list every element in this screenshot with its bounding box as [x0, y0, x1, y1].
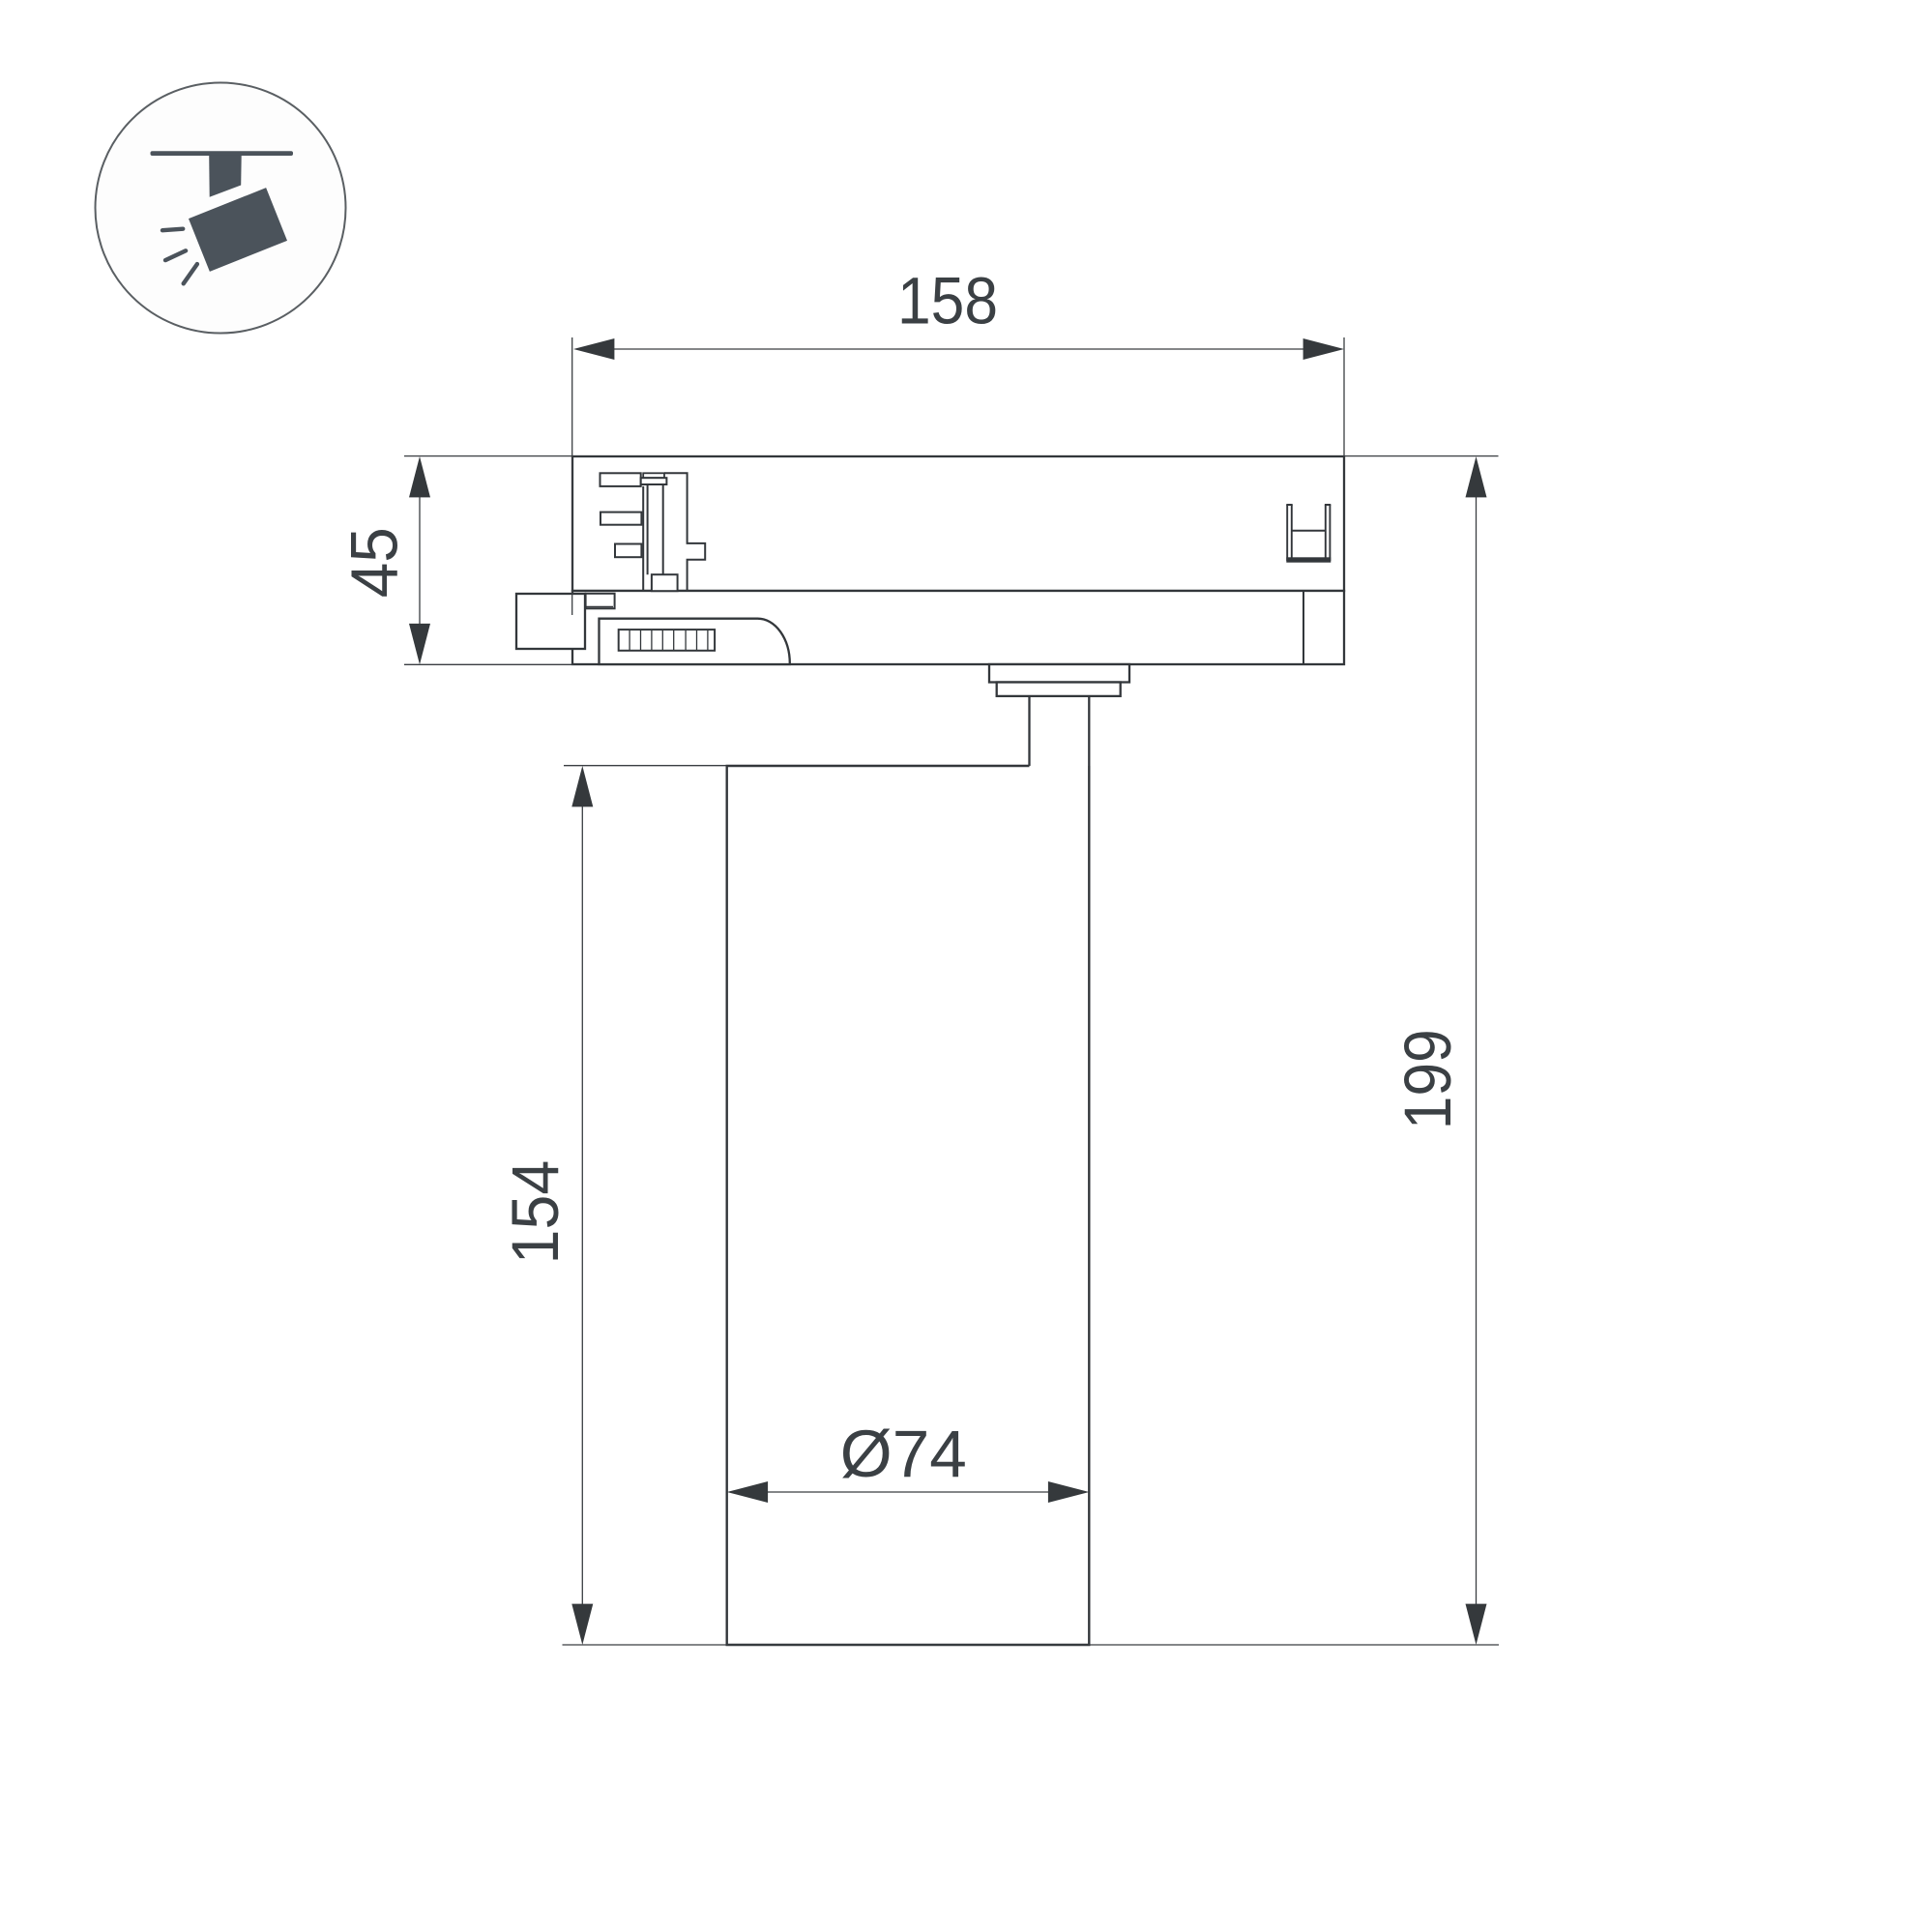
- svg-text:Ø74: Ø74: [840, 1417, 967, 1491]
- svg-text:199: 199: [1390, 1029, 1465, 1129]
- svg-text:158: 158: [897, 264, 998, 338]
- svg-text:154: 154: [498, 1160, 572, 1265]
- svg-text:45: 45: [337, 527, 412, 598]
